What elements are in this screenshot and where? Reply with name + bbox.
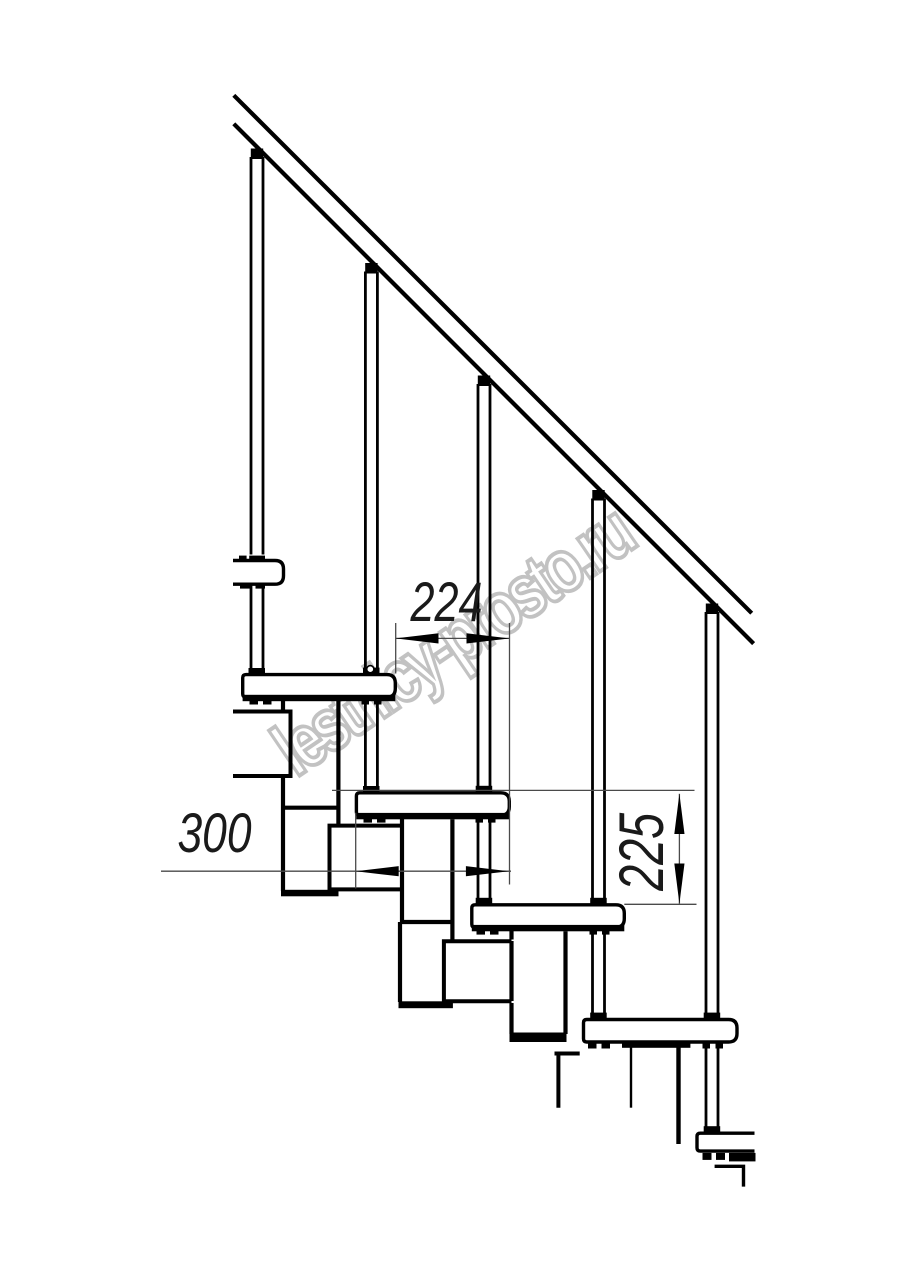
svg-text:225: 225 [607,812,677,891]
svg-text:300: 300 [178,801,252,864]
svg-text:224: 224 [410,570,483,633]
